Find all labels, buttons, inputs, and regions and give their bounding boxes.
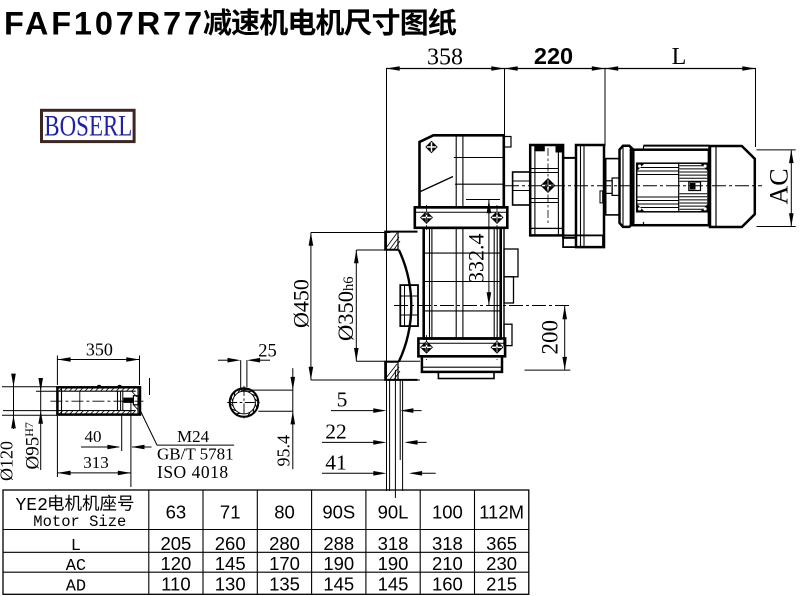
- svg-text:63: 63: [166, 502, 187, 523]
- svg-text:160: 160: [432, 574, 463, 595]
- svg-text:350: 350: [86, 340, 113, 360]
- svg-text:GB/T 5781: GB/T 5781: [157, 445, 234, 464]
- svg-text:22: 22: [325, 420, 347, 444]
- svg-text:288: 288: [323, 533, 354, 554]
- svg-text:AD: AD: [66, 578, 86, 596]
- svg-text:M24: M24: [177, 427, 210, 446]
- svg-text:145: 145: [215, 553, 246, 574]
- svg-text:358: 358: [427, 45, 463, 71]
- svg-text:41: 41: [325, 451, 347, 475]
- svg-text:100: 100: [432, 502, 463, 523]
- svg-text:280: 280: [269, 533, 300, 554]
- svg-text:260: 260: [215, 533, 246, 554]
- svg-text:210: 210: [432, 553, 463, 574]
- svg-text:BOSERL: BOSERL: [44, 111, 132, 143]
- svg-text:40: 40: [85, 427, 102, 446]
- svg-text:145: 145: [323, 574, 354, 595]
- svg-text:200: 200: [538, 320, 563, 355]
- svg-text:365: 365: [486, 533, 517, 554]
- svg-text:71: 71: [220, 502, 241, 523]
- svg-text:ISO 4018: ISO 4018: [157, 462, 229, 482]
- svg-text:25: 25: [258, 342, 277, 362]
- svg-text:90S: 90S: [322, 502, 355, 523]
- svg-text:215: 215: [486, 574, 517, 595]
- svg-text:120: 120: [160, 553, 191, 574]
- svg-text:5: 5: [337, 388, 348, 412]
- svg-text:130: 130: [215, 574, 246, 595]
- svg-text:Ø120: Ø120: [0, 441, 17, 481]
- svg-text:AC: AC: [765, 168, 794, 204]
- svg-text:190: 190: [378, 553, 409, 574]
- svg-text:FAF107R77: FAF107R77: [4, 6, 205, 42]
- svg-text:313: 313: [83, 453, 109, 472]
- svg-text:95.4: 95.4: [274, 435, 294, 467]
- svg-text:L: L: [672, 44, 687, 70]
- svg-text:Ø450: Ø450: [289, 279, 314, 328]
- svg-text:220: 220: [534, 43, 573, 69]
- svg-text:90L: 90L: [378, 502, 409, 523]
- svg-text:L: L: [71, 537, 81, 556]
- svg-text:230: 230: [486, 553, 517, 574]
- svg-text:Motor Size: Motor Size: [33, 513, 126, 531]
- svg-text:112M: 112M: [479, 502, 524, 523]
- svg-text:318: 318: [432, 533, 463, 554]
- svg-text:80: 80: [274, 502, 295, 523]
- svg-text:332.4: 332.4: [464, 234, 489, 284]
- svg-text:205: 205: [160, 533, 191, 554]
- svg-text:110: 110: [161, 574, 191, 595]
- svg-text:135: 135: [269, 574, 300, 595]
- svg-text:145: 145: [378, 574, 409, 595]
- svg-text:190: 190: [323, 553, 354, 574]
- svg-text:170: 170: [269, 553, 300, 574]
- svg-text:318: 318: [378, 533, 409, 554]
- svg-text:AC: AC: [66, 557, 86, 576]
